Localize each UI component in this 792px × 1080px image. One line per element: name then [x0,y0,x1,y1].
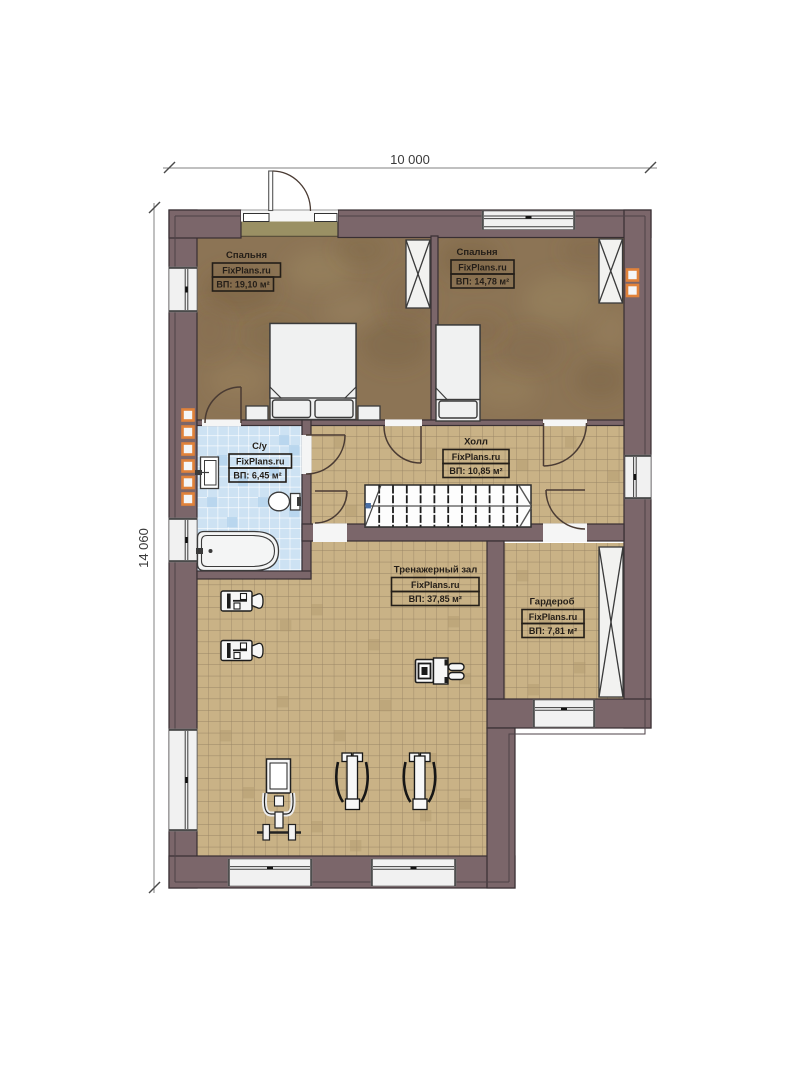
svg-text:FixPlans.ru: FixPlans.ru [458,263,507,273]
svg-text:Спальня: Спальня [226,250,267,261]
svg-text:ВП: 6,45 м²: ВП: 6,45 м² [233,471,281,481]
svg-text:ВП: 19,10 м²: ВП: 19,10 м² [216,280,269,290]
svg-text:FixPlans.ru: FixPlans.ru [411,580,460,590]
svg-text:10 000: 10 000 [390,152,430,167]
svg-text:FixPlans.ru: FixPlans.ru [452,452,501,462]
svg-text:FixPlans.ru: FixPlans.ru [222,266,271,276]
svg-text:FixPlans.ru: FixPlans.ru [236,457,285,467]
svg-text:Гардероб: Гардероб [530,597,575,608]
svg-text:ВП: 14,78 м²: ВП: 14,78 м² [456,277,509,287]
svg-text:14 060: 14 060 [136,528,151,568]
svg-text:ВП: 10,85 м²: ВП: 10,85 м² [449,466,502,476]
svg-text:ВП: 7,81 м²: ВП: 7,81 м² [529,626,577,636]
svg-text:Спальня: Спальня [456,247,497,258]
svg-text:Тренажерный зал: Тренажерный зал [394,565,478,576]
svg-text:Холл: Холл [464,437,488,448]
svg-text:С/у: С/у [252,441,268,452]
svg-text:FixPlans.ru: FixPlans.ru [529,612,578,622]
svg-text:ВП: 37,85 м²: ВП: 37,85 м² [409,594,462,604]
